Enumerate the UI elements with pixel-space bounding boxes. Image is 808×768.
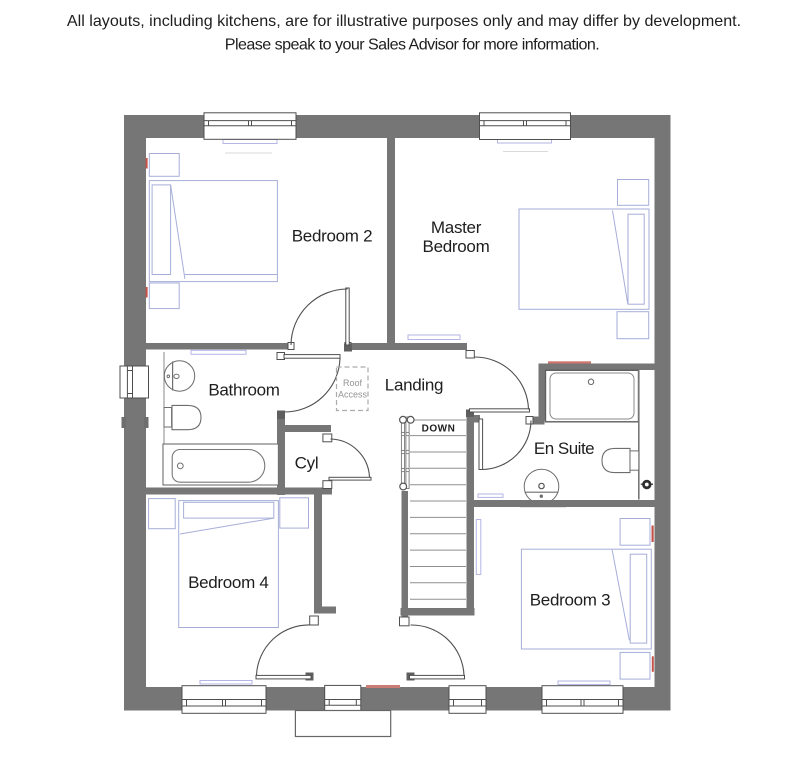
svg-text:Master: Master [431, 218, 482, 237]
svg-text:Landing: Landing [385, 376, 443, 395]
svg-text:Please speak to your Sales Adv: Please speak to your Sales Advisor for m… [225, 36, 599, 54]
svg-text:Bedroom: Bedroom [423, 237, 490, 256]
svg-text:Bathroom: Bathroom [208, 381, 279, 400]
svg-text:Bedroom 4: Bedroom 4 [188, 573, 268, 592]
svg-text:Bedroom 3: Bedroom 3 [530, 590, 610, 609]
svg-text:DOWN: DOWN [422, 424, 456, 435]
svg-text:Roof: Roof [343, 378, 363, 388]
svg-text:All layouts, including kitchen: All layouts, including kitchens, are for… [67, 12, 741, 30]
svg-text:Access: Access [338, 389, 368, 399]
svg-text:Bedroom 2: Bedroom 2 [292, 226, 372, 245]
svg-text:Cyl: Cyl [295, 454, 319, 473]
svg-text:En Suite: En Suite [534, 439, 594, 458]
